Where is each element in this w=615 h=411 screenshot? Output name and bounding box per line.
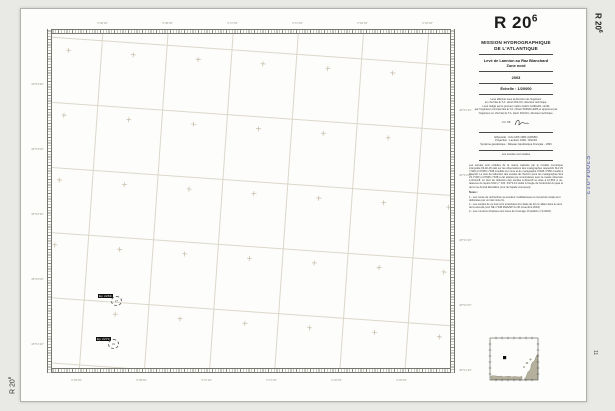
page-number: 11: [592, 350, 598, 355]
coordinate-label: 3°46'30": [357, 21, 368, 25]
coordinate-label: 3°47'00": [266, 378, 277, 382]
geodesy-block: Ellipsoïde : IAG GRS 1980 (GRS80) Projec…: [465, 136, 567, 147]
survey-year: 2003: [465, 75, 567, 80]
wreck-label: Ep 2269: [98, 294, 113, 298]
coordinate-label: 3°46'00": [422, 21, 433, 25]
handwritten-signature-icon: [514, 117, 530, 128]
coordinate-label: 48°52'30": [23, 212, 44, 216]
sheet-code-text: R 20: [593, 13, 602, 30]
coordinate-label: 3°48'30": [71, 378, 82, 382]
sheet-code-text: R 20: [494, 13, 532, 32]
scanned-page-background: R 206 R 206 S2004-012 11 Ep 2269 27 Ep 2…: [0, 0, 615, 411]
coordinate-label: 3°47'30": [227, 21, 238, 25]
survey-scale: Échelle : 1/20000: [465, 86, 567, 91]
map-frame: Ep 2269 27 Ep 2270 31: [47, 29, 455, 373]
signature-row: J.M. DB: [465, 116, 567, 129]
coordinate-label: 3°48'00": [136, 378, 147, 382]
sheet-code-sup: 6: [597, 30, 603, 33]
separator-rule: [479, 150, 553, 151]
sheet-code-title: R 206: [465, 13, 567, 33]
coordinate-label: 48°51'30": [459, 368, 472, 372]
note-line: 2 - Les sondes de ce levé sont entachées…: [469, 203, 563, 209]
coordinate-label: 48°51'30": [23, 342, 44, 346]
coordinate-label: 48°52'30": [459, 238, 472, 242]
coordinate-label: 3°46'00": [396, 378, 407, 382]
notes-heading: Notes :: [469, 191, 563, 194]
sheet-code-vertical-bottom-left: R 206: [7, 377, 16, 394]
map-features: Ep 2269 27 Ep 2270 31: [47, 29, 455, 373]
wreck-danger-circle-icon: 27: [111, 296, 122, 306]
coordinate-label: 3°48'30": [97, 21, 108, 25]
sheet-code-sup: 6: [7, 377, 12, 380]
sheet-code-text: R 20: [9, 379, 16, 394]
separator-rule: [479, 83, 553, 84]
signature-initials: J.M. DB: [502, 121, 511, 124]
credit-line: l'ingénieur en chef des E.T.A. Henri DOL…: [465, 112, 567, 115]
inset-map-icon: [488, 336, 542, 384]
soundings-note: Les sondes sont réelles: [465, 153, 567, 157]
survey-subtitle-line2: Zone nord: [465, 63, 567, 68]
mission-title-line2: DE L'ATLANTIQUE: [465, 46, 567, 52]
title-block: R 206 MISSION HYDROGRAPHIQUE DE L'ATLANT…: [465, 11, 567, 215]
coordinate-label: 3°48'00": [162, 21, 173, 25]
coordinate-label: 48°53'00": [23, 147, 44, 151]
separator-rule: [479, 94, 553, 95]
wreck-danger-circle-icon: 31: [108, 339, 119, 349]
note-line: 1 - Les zones de recherches au sondeur m…: [469, 196, 563, 202]
coordinate-label: 3°47'30": [201, 378, 212, 382]
coordinate-label: 48°52'00": [459, 303, 472, 307]
coordinate-label: 48°52'00": [23, 277, 44, 281]
credits-block: Levé effectué sous la direction de l'ing…: [465, 98, 567, 115]
survey-sheet: Ep 2269 27 Ep 2270 31 3°48'30"3°48'00"3°…: [20, 8, 587, 402]
survey-zone-marker: [503, 356, 506, 359]
separator-rule: [479, 160, 553, 161]
separator-rule: [479, 54, 553, 55]
geodesy-line: Système géodésique : Réseau Géodésique F…: [465, 143, 567, 147]
notes-block: 1 - Les zones de recherches au sondeur m…: [469, 196, 563, 214]
separator-rule: [479, 71, 553, 72]
coordinate-label: 48°53'30": [23, 82, 44, 86]
coordinate-label: 3°46'30": [331, 378, 342, 382]
separator-rule: [479, 132, 553, 133]
sheet-code-sup: 6: [532, 13, 538, 24]
coordinate-label: 3°47'00": [292, 21, 303, 25]
sheet-code-vertical-top-right: R 206: [593, 13, 603, 33]
tide-reduction-paragraph: Les sondes sont réduites de la marée cal…: [469, 164, 563, 189]
note-line: 3 - Les numéros d'épaves sont issus de l…: [469, 210, 563, 213]
location-inset-map: [488, 336, 542, 389]
